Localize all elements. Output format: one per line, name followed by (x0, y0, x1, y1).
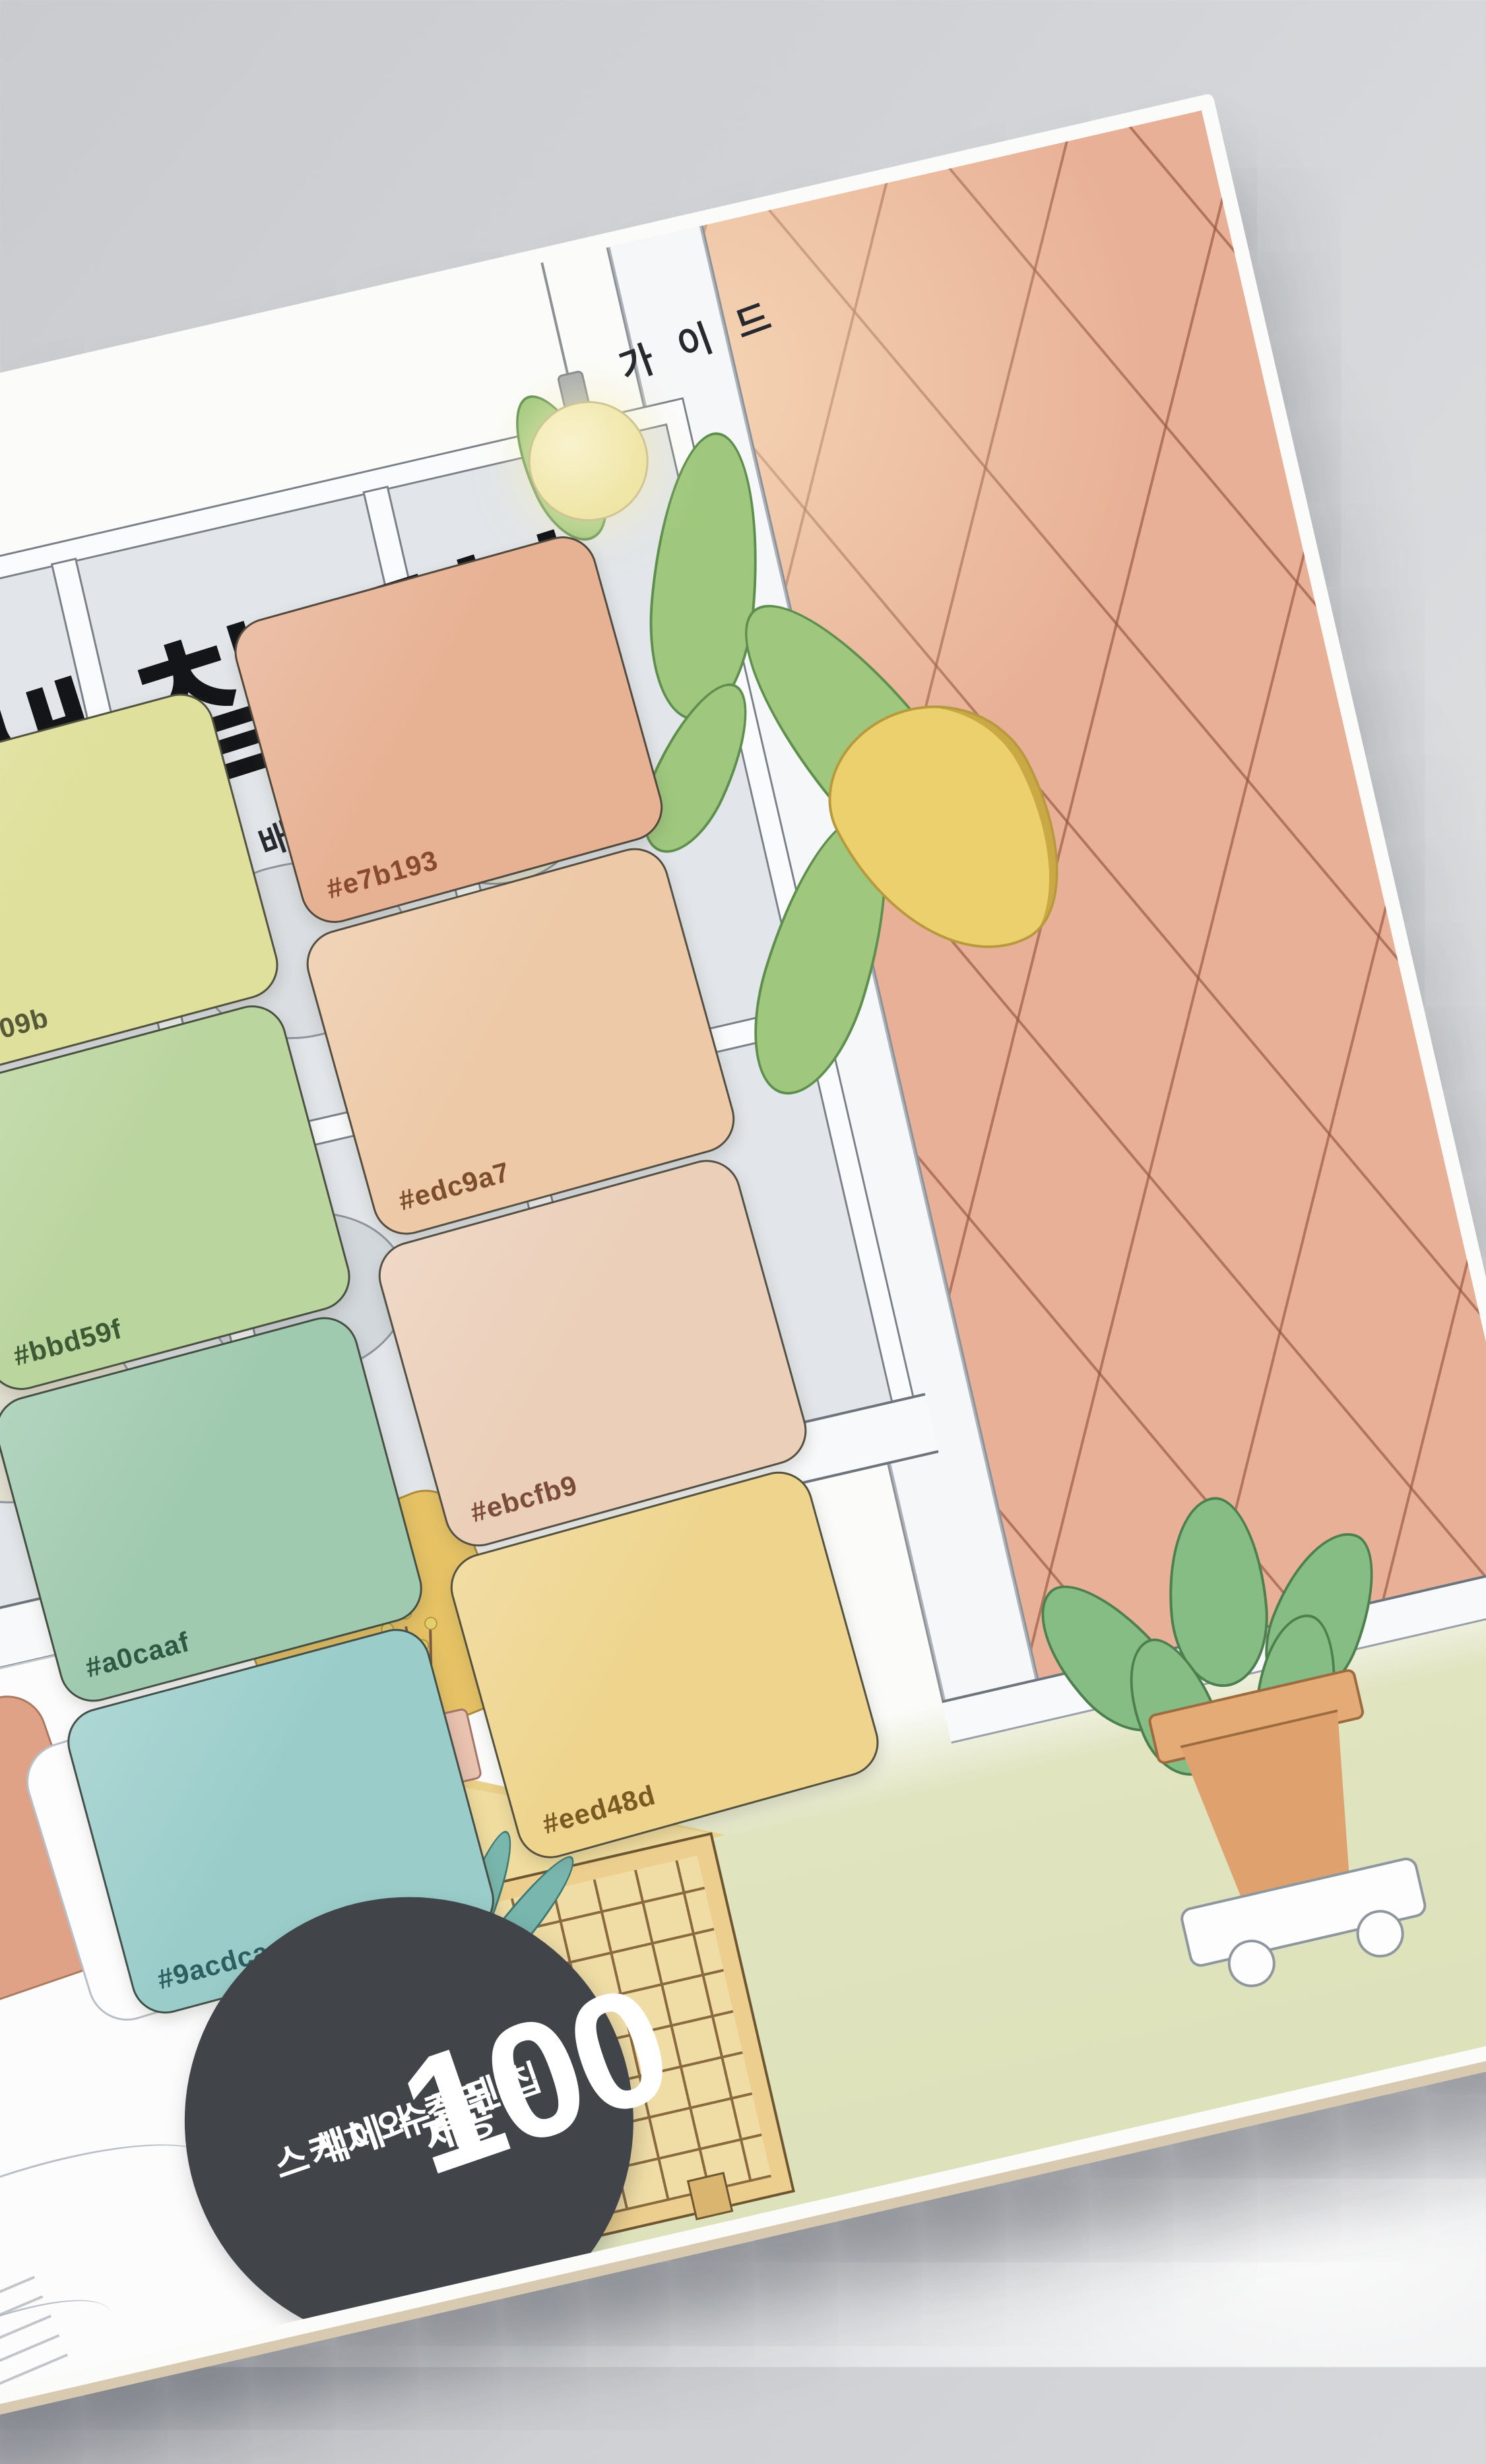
swatch-hex-label: #a0caaf (82, 1626, 193, 1684)
cover-illustration: 드로잉이 재미있어지는 배색과 채색 가이드 색,칠,공부 #dfe09b #e… (0, 110, 1486, 2434)
swatch-hex-label: #dfe09b (0, 1001, 52, 1060)
swatch-hex-label: #e7b193 (323, 844, 441, 905)
bulb-cord (539, 256, 570, 379)
swatch-hex-label: #edc9a7 (395, 1156, 513, 1216)
book-cover: 드로잉이 재미있어지는 배색과 채색 가이드 색,칠,공부 #dfe09b #e… (0, 93, 1486, 2464)
swatch-hex-label: #bbd59f (10, 1313, 125, 1372)
swatch-hex-label: #ebcfb9 (467, 1469, 581, 1529)
swatch-hex-label: #eed48d (539, 1779, 659, 1841)
